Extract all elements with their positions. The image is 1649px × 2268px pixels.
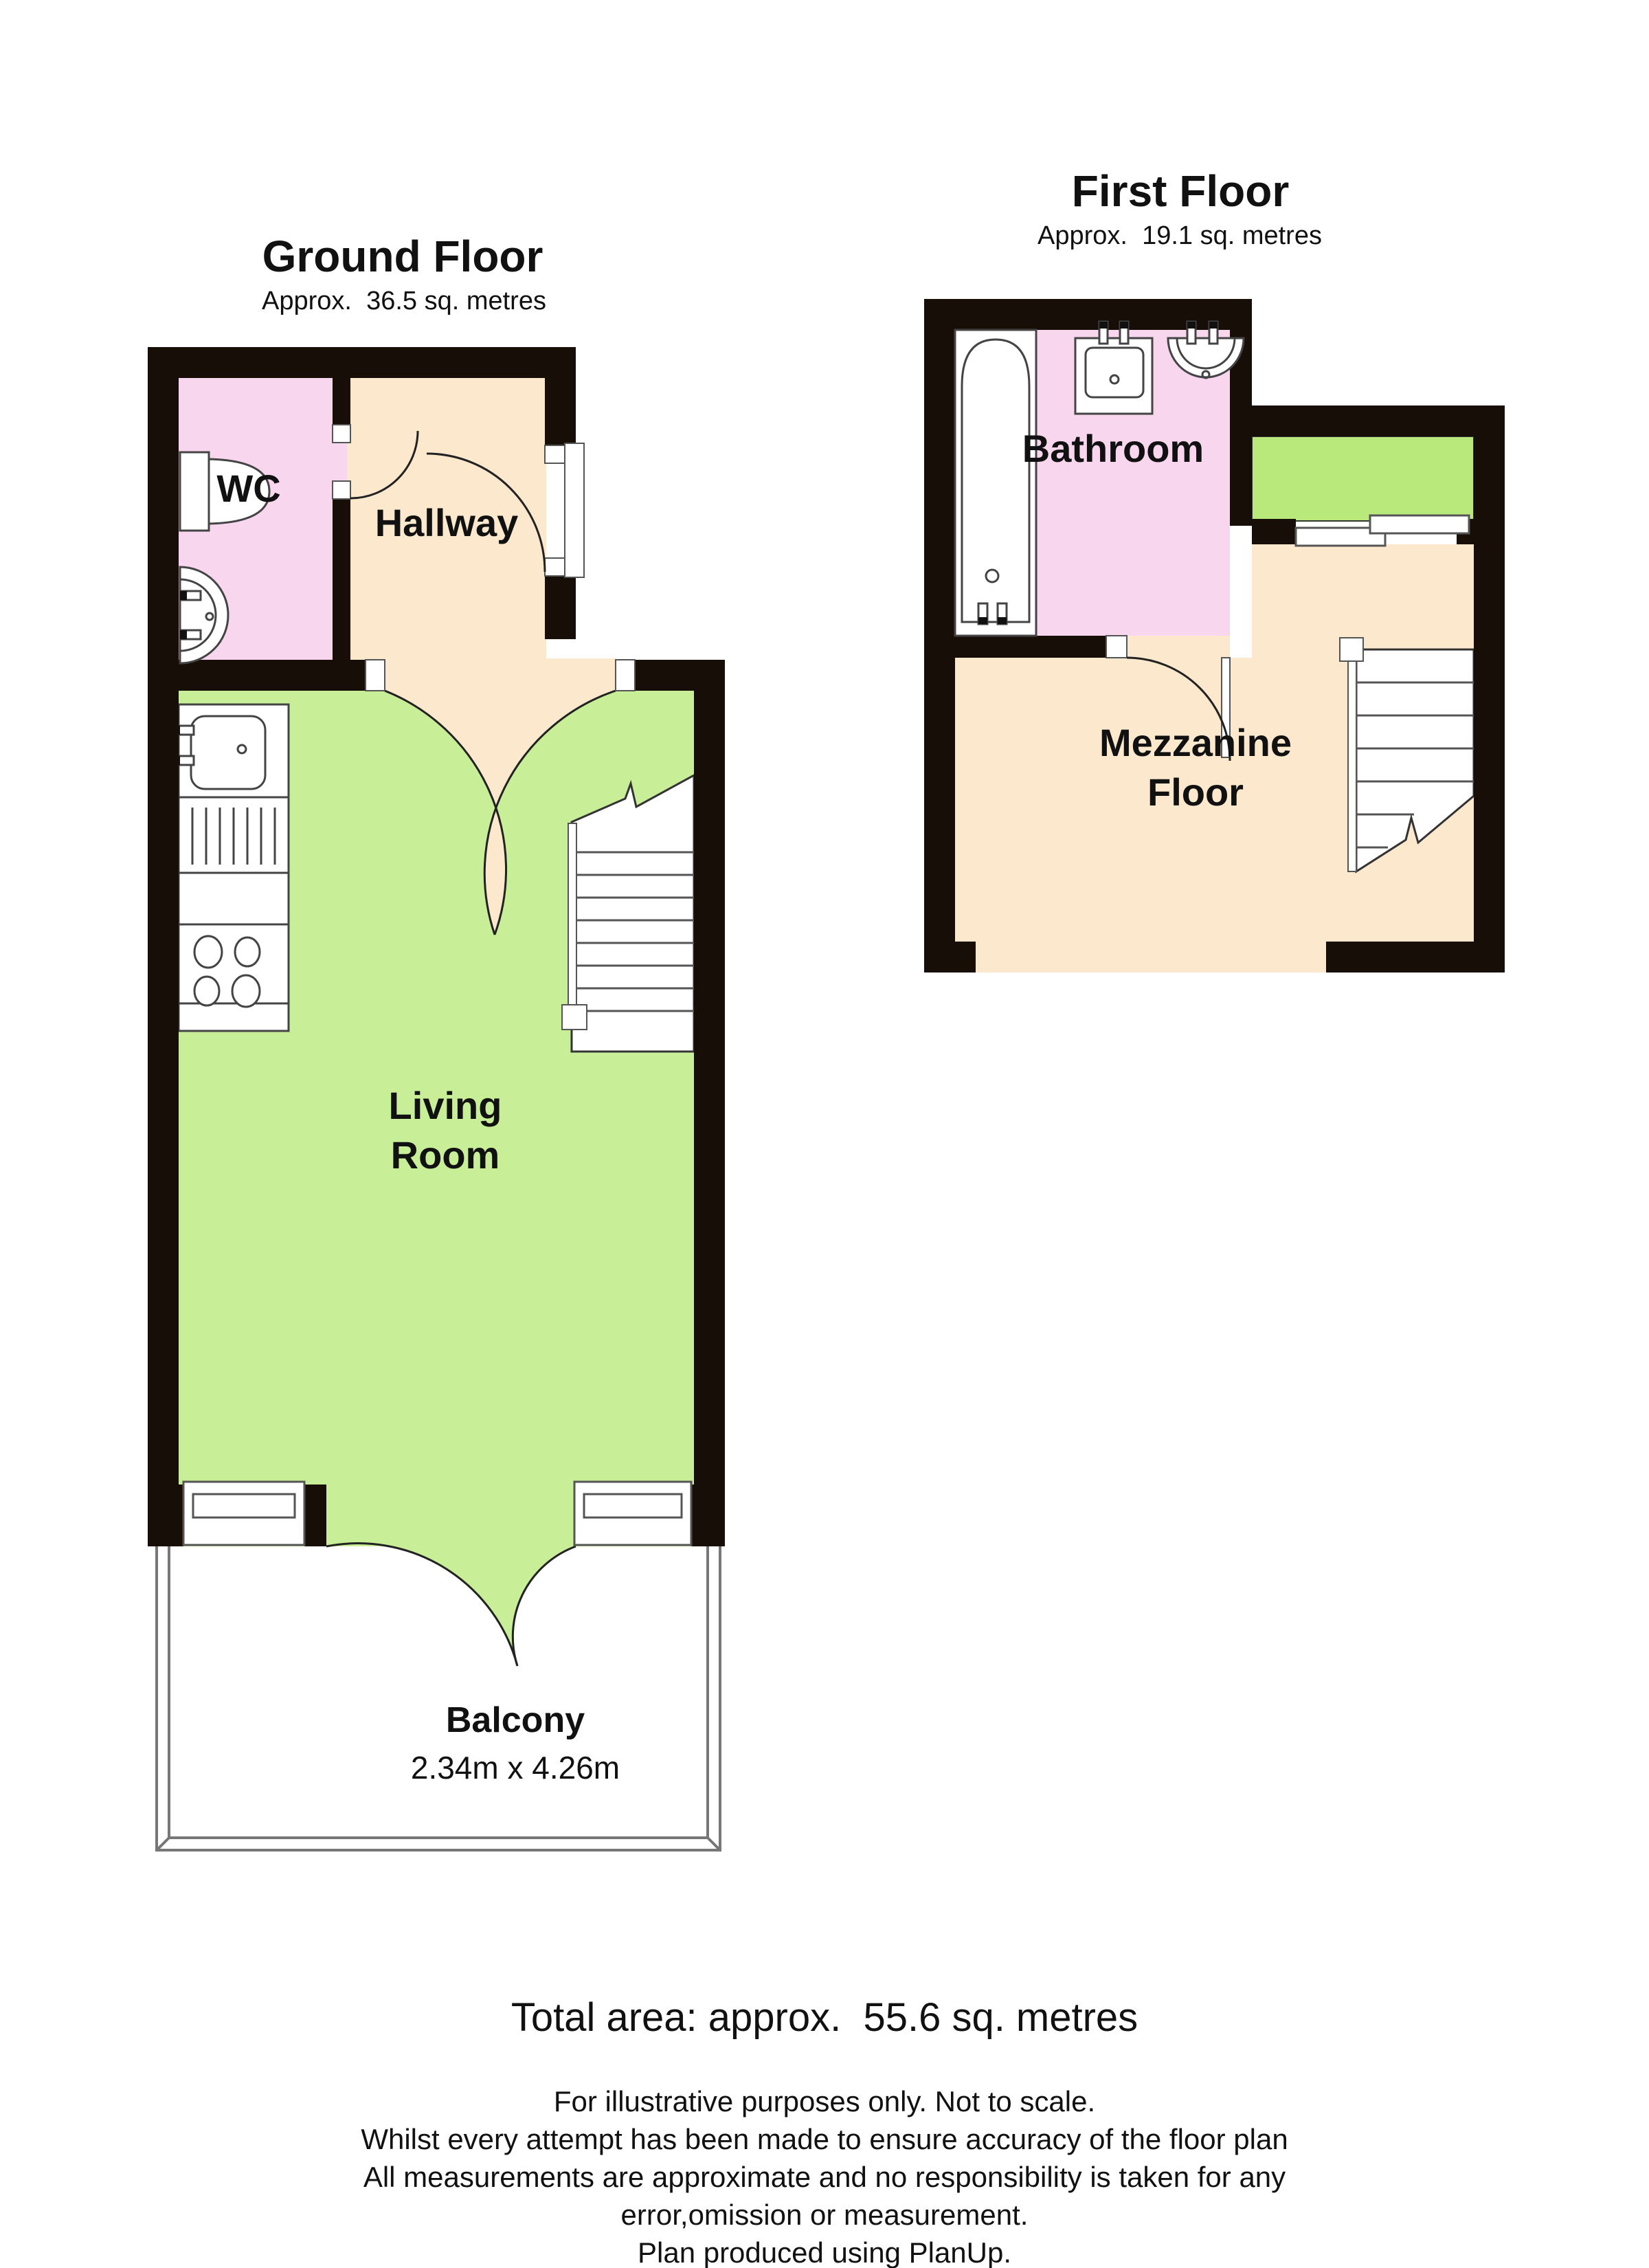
produced-by-text: Plan produced using PlanUp. (638, 2236, 1011, 2268)
living-room-window-right (574, 1482, 691, 1545)
wc-label: WC (216, 467, 280, 510)
living-room-label-line2: Room (391, 1133, 500, 1177)
balcony (157, 1544, 720, 1850)
ground-floor-area: Approx. 36.5 sq. metres (262, 287, 546, 315)
disclaimer-line-3: All measurements are approximate and no … (363, 2161, 1286, 2193)
floorplan-drawing: Ground Floor Approx. 36.5 sq. metres (0, 0, 1649, 2268)
stair-newel-post (562, 1005, 587, 1030)
balcony-dimensions: 2.34m x 4.26m (411, 1750, 620, 1786)
living-room-window-left (183, 1482, 304, 1545)
living-door-jamb-left (366, 660, 385, 691)
disclaimer-line-1: For illustrative purposes only. Not to s… (554, 2085, 1095, 2117)
stair-rail (568, 823, 576, 1006)
first-floor-title: First Floor (1072, 166, 1289, 216)
stair-newel-post (1340, 638, 1363, 661)
total-area-text: Total area: approx. 55.6 sq. metres (511, 1995, 1138, 2040)
first-floor-area: Approx. 19.1 sq. metres (1037, 221, 1322, 250)
wc-door-jamb-bottom (333, 481, 350, 499)
kitchen-counter (173, 704, 289, 1031)
stair-rail (1348, 661, 1356, 871)
first-floor-plan: First Floor Approx. 19.1 sq. metres (924, 166, 1505, 972)
mezzanine-label-line1: Mezzanine (1099, 721, 1292, 764)
ground-floor-title: Ground Floor (262, 232, 543, 281)
bathtub-icon (955, 330, 1036, 636)
mezzanine-label-line2: Floor (1147, 770, 1244, 814)
wc-door-jamb-top (333, 425, 350, 443)
ground-floor-stairs (562, 775, 694, 1052)
balcony-label: Balcony (446, 1700, 585, 1740)
balcony-door-swing-area (326, 1544, 576, 1666)
hallway-label: Hallway (375, 501, 519, 544)
disclaimer-line-2: Whilst every attempt has been made to en… (361, 2123, 1288, 2155)
bathroom-door-jamb (1106, 636, 1127, 658)
bathroom-doorway-floor (1127, 636, 1230, 660)
floorplan-page: Ground Floor Approx. 36.5 sq. metres (0, 0, 1649, 2268)
disclaimer-line-4: error,omission or measurement. (621, 2199, 1029, 2231)
terrace-area (1252, 436, 1474, 521)
living-door-jamb-right (616, 660, 635, 691)
mezzanine-open-edge (976, 942, 1326, 972)
entry-door-frame (565, 443, 584, 577)
living-room-label-line1: Living (389, 1084, 502, 1127)
ground-floor-plan: Ground Floor Approx. 36.5 sq. metres (148, 232, 725, 1850)
footer: Total area: approx. 55.6 sq. metres For … (361, 1995, 1288, 2268)
bathroom-label: Bathroom (1022, 427, 1204, 470)
